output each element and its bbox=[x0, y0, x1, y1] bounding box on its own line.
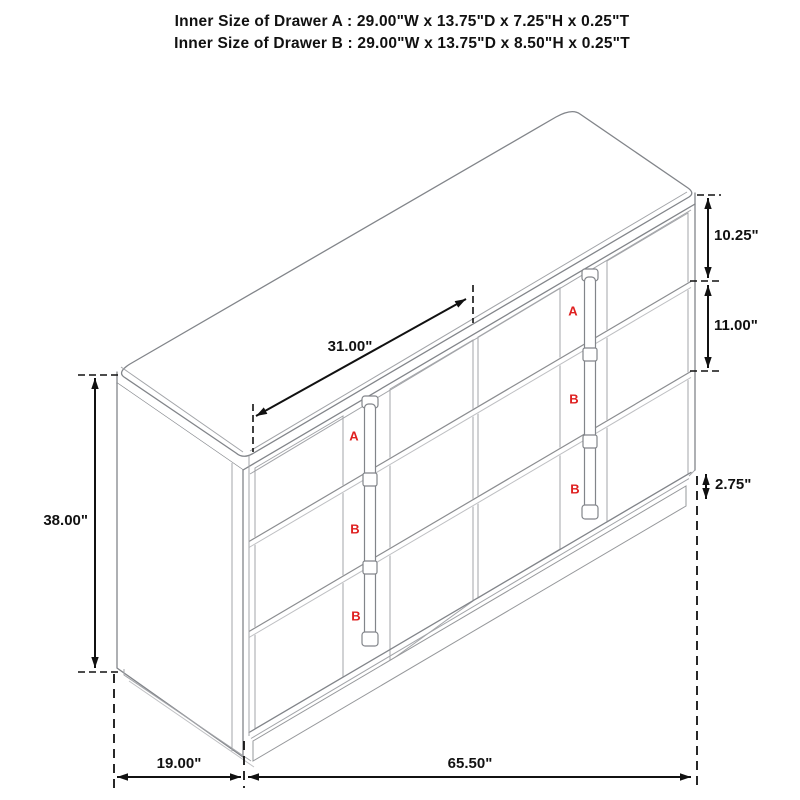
sideboard-line-drawing bbox=[0, 0, 800, 800]
drawer-a-spec: Inner Size of Drawer A : 29.00"W x 13.75… bbox=[175, 13, 630, 31]
drawer-front-width-label: 31.00" bbox=[328, 338, 373, 355]
fluted-panel-center-left bbox=[390, 340, 473, 661]
right-drawer-a-label: A bbox=[568, 304, 577, 319]
top-drawer-height-label: 10.25" bbox=[714, 227, 759, 244]
left-drawer-b2-label: B bbox=[351, 609, 360, 624]
overall-depth-label: 19.00" bbox=[157, 755, 202, 772]
left-drawer-handle bbox=[362, 396, 378, 646]
right-drawer-b2-label: B bbox=[570, 482, 579, 497]
fluted-panel-center-right bbox=[478, 288, 560, 598]
cabinet bbox=[117, 112, 695, 767]
right-drawer-b1-label: B bbox=[569, 392, 578, 407]
left-drawer-a-label: A bbox=[349, 429, 358, 444]
overall-width-label: 65.50" bbox=[448, 755, 493, 772]
dimension-diagram-page: Inner Size of Drawer A : 29.00"W x 13.75… bbox=[0, 0, 800, 800]
fluted-panel-right bbox=[607, 213, 688, 522]
cabinet-base bbox=[249, 470, 695, 761]
cabinet-top-surface bbox=[121, 112, 692, 457]
middle-drawer-height-label: 11.00" bbox=[714, 317, 758, 334]
drawer-b-spec: Inner Size of Drawer B : 29.00"W x 13.75… bbox=[174, 35, 630, 53]
left-drawer-b1-label: B bbox=[350, 522, 359, 537]
right-drawer-handle bbox=[582, 269, 598, 519]
overall-height-label: 38.00" bbox=[43, 512, 88, 529]
base-height-label: 2.75" bbox=[715, 476, 751, 493]
